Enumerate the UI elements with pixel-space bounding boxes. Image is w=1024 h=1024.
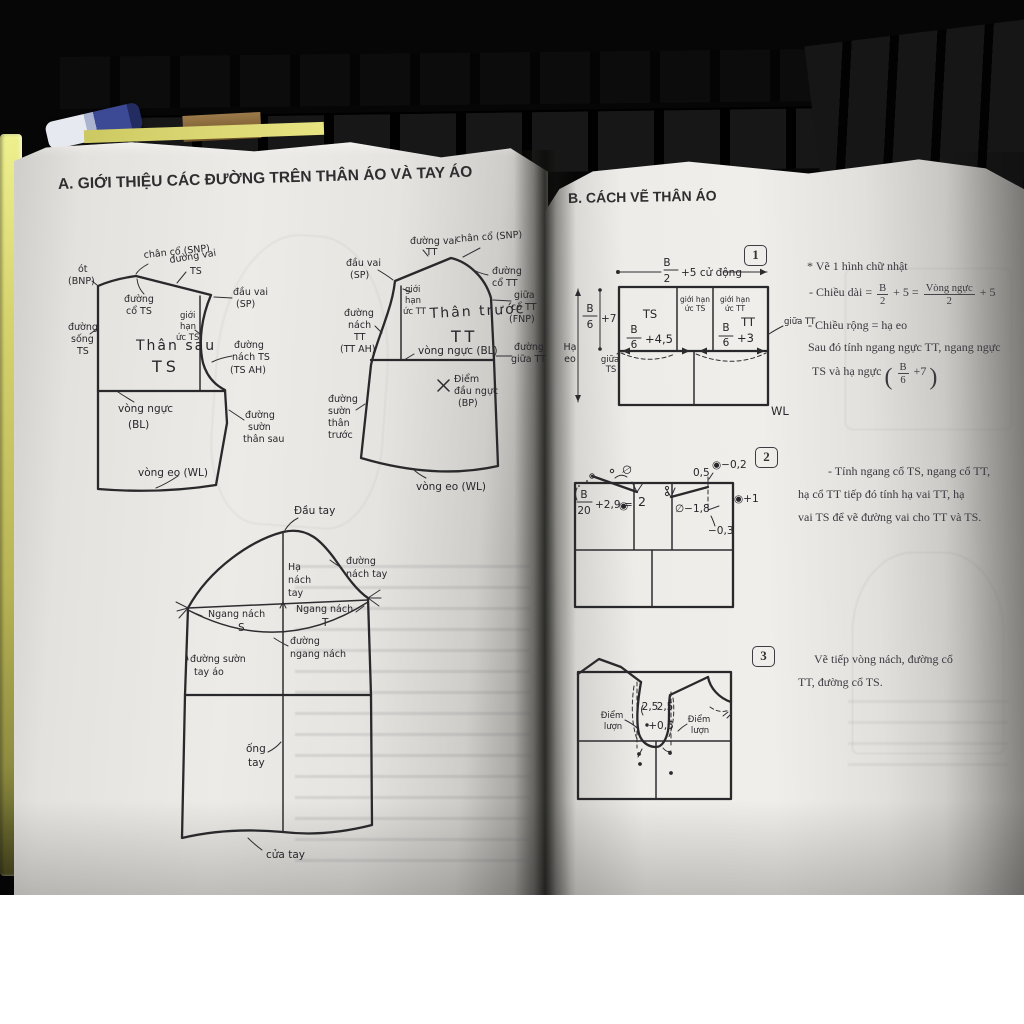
s2-angle-symbol: ∅ <box>620 462 634 478</box>
label-sleeve-tube-2: tay <box>248 757 265 769</box>
label-front-sp-2: (SP) <box>350 270 369 281</box>
s1-top-rest: +5 cử động <box>681 267 742 279</box>
s1-top-frac-num: B <box>663 257 670 269</box>
s1-back-frac-num: B <box>630 324 637 336</box>
label-back-side-1: đường <box>245 410 275 421</box>
step2-note-3: vai TS để vẽ đường vai cho TT và TS. <box>798 506 1024 529</box>
s3-curve-left-2: lượn <box>604 722 622 732</box>
label-front-bp-1: Điểm <box>454 374 479 385</box>
label-back-cb-2: sống <box>71 334 94 345</box>
s1-left-frac-num: B <box>586 303 593 315</box>
label-sleeve-curve-1: đường <box>346 556 376 567</box>
label-front-side-2: sườn <box>328 406 351 417</box>
label-front-neck-2: cổ TT <box>492 278 518 289</box>
label-back-waist: vòng eo (WL) <box>138 467 208 479</box>
label-back-limit-2: hạn <box>180 322 196 332</box>
label-back-shoulder-2: TS <box>189 266 202 277</box>
s3-plus05: +0,5 <box>648 720 674 732</box>
s1-limit-tt-2: ức TT <box>725 304 746 313</box>
s1-center-back-2: TS <box>605 365 617 375</box>
label-back-ot: ót <box>78 264 88 275</box>
s1-front-rest: +3 <box>737 331 754 345</box>
s1-waist-drop-1: Hạ <box>564 342 577 353</box>
s1-limit-ts-1: giới hạn <box>680 295 710 304</box>
label-back-cb-1: đường <box>68 322 98 333</box>
paren-open: ( <box>885 365 893 391</box>
step1-note-2b: + 5 = <box>893 285 919 299</box>
s2-frac-den: 20 <box>577 505 590 517</box>
step1-note-3: - Chiều rộng = hạ eo <box>795 315 1023 335</box>
label-back-armhole-3: (TS AH) <box>230 365 266 376</box>
s1-back-frac-den: 6 <box>631 339 638 351</box>
s1-front-frac-den: 6 <box>723 337 730 349</box>
label-sleeve-front-width-2: T <box>321 617 329 629</box>
s2-target-symbol: ◉ <box>619 500 628 512</box>
s2-front-slope: ∅−1,8 <box>675 503 710 515</box>
step1-note-2c: + 5 <box>980 285 996 299</box>
label-front-snp: chân cổ (SNP) <box>455 229 522 245</box>
label-front-side-4: trước <box>328 430 353 441</box>
sleeve-paths <box>176 518 381 850</box>
white-padding-strip <box>0 895 1024 1024</box>
label-front-shoulder-1: đường vai <box>410 236 457 247</box>
s3-num-right: 2,5 <box>657 701 674 713</box>
s1-ts: TS <box>642 307 657 321</box>
label-sleeve-seam-1: đường sườn <box>190 654 246 665</box>
label-back-sp-1: đầu vai <box>233 287 268 298</box>
label-front-side-1: đường <box>328 394 358 405</box>
back-bodice-diagram: chân cổ (SNP) ót (BNP) đường vai TS đườn… <box>48 238 328 500</box>
label-back-armhole-1: đường <box>234 340 264 351</box>
label-sleeve-depth-1: Hạ <box>288 562 301 573</box>
fraction-b-over-2: B2 <box>877 283 888 307</box>
label-front-limit-2: hạn <box>405 296 421 306</box>
back-bodice-paths <box>90 264 244 491</box>
step1-diagram: B 2 +5 cử động B 6 +7 Hạ eo TS TT giới h… <box>563 250 791 436</box>
fraction-bust-over-2: Vòng ngực2 <box>924 283 975 307</box>
label-sleeve-tube-1: ống <box>246 743 266 755</box>
label-sleeve-cap: Đầu tay <box>294 505 335 517</box>
s1-top-frac-den: 2 <box>664 273 671 285</box>
s1-tt: TT <box>740 315 756 329</box>
sleeve-diagram: Đầu tay Hạ nách tay đường nách tay Ngang… <box>150 490 450 878</box>
label-front-limit-3: ức TT <box>403 307 427 317</box>
s2-frac-num: B <box>580 489 587 501</box>
step2-note-2: hạ cổ TT tiếp đó tính hạ vai TT, hạ <box>798 483 1024 506</box>
label-front-armhole-2: nách <box>348 320 371 331</box>
s1-center-back-1: giữa <box>601 355 619 365</box>
label-front-armhole-1: đường <box>344 308 374 319</box>
step2-diagram: B 20 +2,9 = ◉ ∅ 2 ∅−1,8 0,5 ◉−0,2 ◉+1 −0… <box>563 446 791 636</box>
label-front-limit-1: giới <box>405 284 420 295</box>
front-bodice-diagram: đầu vai (SP) đường vai TT chân cổ (SNP) … <box>318 228 538 510</box>
label-back-bnp: (BNP) <box>68 276 95 287</box>
label-front-bp-2: đầu ngực <box>454 386 498 397</box>
label-sleeve-underarm-2: ngang nách <box>290 649 346 660</box>
label-back-bust-2: (BL) <box>128 419 149 431</box>
step1-note-5: TS và hạ ngực ( B6 +7 ) <box>795 361 1023 388</box>
step3-note-1: Vẽ tiếp vòng nách, đường cổ <box>798 648 1024 671</box>
label-back-bust-1: vòng ngực <box>118 403 173 415</box>
step1-note-2: - Chiều dài = B2 + 5 = Vòng ngực2 + 5 <box>795 282 1023 307</box>
label-front-cf-2: giữa TT <box>511 354 546 365</box>
label-sleeve-curve-2: nách tay <box>346 569 388 580</box>
label-front-side-3: thân <box>328 418 350 429</box>
label-back-abbr: TS <box>151 357 180 376</box>
s1-left-rest: +7 <box>601 313 616 325</box>
step1-note-1: * Vẽ 1 hình chữ nhật <box>795 256 1023 276</box>
label-back-side-3: thân sau <box>243 434 284 445</box>
label-front-neck-1: đường <box>492 266 522 277</box>
label-back-cb-3: TS <box>76 346 89 357</box>
label-back-neck-1: đường <box>124 294 154 305</box>
s1-waist-drop-2: eo <box>564 354 576 365</box>
fraction-b-over-6: B6 <box>898 362 909 386</box>
label-front-sp-1: đầu vai <box>346 258 381 269</box>
s3-curve-left-1: Điểm <box>601 710 623 721</box>
s2-plus1: ◉+1 <box>734 493 759 505</box>
ghost-text-right-page <box>848 700 1008 780</box>
s3-curve-right-2: lượn <box>691 726 709 736</box>
label-sleeve-cuff: cửa tay <box>266 849 305 861</box>
label-sleeve-back-width-1: Ngang nách <box>208 609 265 620</box>
label-back-armhole-2: nách TS <box>232 352 270 363</box>
step1-note-5b: +7 <box>914 364 927 378</box>
step2-paths <box>575 469 733 607</box>
label-sleeve-seam-2: tay áo <box>194 667 224 678</box>
label-front-shoulder-2: TT <box>425 247 438 258</box>
s1-back-rest: +4,5 <box>645 332 673 346</box>
s1-left-frac-den: 6 <box>587 319 594 331</box>
label-sleeve-underarm-1: đường <box>290 636 320 647</box>
paren-close: ) <box>929 365 937 391</box>
label-front-armhole-4: (TT AH) <box>340 344 376 355</box>
label-sleeve-depth-2: nách <box>288 575 311 586</box>
s3-curve-right-1: Điểm <box>688 714 710 725</box>
photo-of-open-book: A. GIỚI THIỆU CÁC ĐƯỜNG TRÊN THÂN ÁO VÀ … <box>0 0 1024 895</box>
label-back-side-2: sườn <box>248 422 271 433</box>
step3-diagram: 2,5 2,5 +0,5 Điểm lượn Điểm lượn <box>563 650 791 832</box>
label-sleeve-back-width-2: S <box>238 622 245 634</box>
book-photo-stage: A. GIỚI THIỆU CÁC ĐƯỜNG TRÊN THÂN ÁO VÀ … <box>0 0 1024 1024</box>
label-back-name: Thân sau <box>135 338 216 354</box>
step1-note-2a: - Chiều dài = <box>809 285 872 299</box>
s2-half: 0,5 <box>693 467 710 479</box>
s2-minus02: ◉−0,2 <box>712 459 747 471</box>
label-sleeve-depth-3: tay <box>288 588 304 599</box>
label-front-cf-1: đường <box>514 342 544 353</box>
s1-wl: WL <box>771 404 789 418</box>
right-section-title: B. CÁCH VẼ THÂN ÁO <box>568 187 717 206</box>
step2-notes: - Tính ngang cổ TS, ngang cổ TT, hạ cổ T… <box>798 460 1024 529</box>
front-bodice-paths <box>356 248 512 478</box>
s1-front-frac-num: B <box>722 322 729 334</box>
step1-note-5a: TS và hạ ngực <box>812 364 882 378</box>
label-front-fnp-1: giữa <box>514 290 535 301</box>
s2-minus03: −0,3 <box>708 525 734 537</box>
label-front-armhole-3: TT <box>353 332 366 343</box>
step1-note-4: Sau đó tính ngang ngực TT, ngang ngực <box>795 337 1023 357</box>
step1-notes: * Vẽ 1 hình chữ nhật - Chiều dài = B2 + … <box>795 256 1023 388</box>
label-front-bp-3: (BP) <box>458 398 478 409</box>
label-front-bust: vòng ngực (BL) <box>418 345 498 357</box>
s2-two: 2 <box>638 494 646 509</box>
label-back-neck-2: cổ TS <box>126 306 152 317</box>
step3-note-2: TT, đường cổ TS. <box>798 671 1024 694</box>
step3-notes: Vẽ tiếp vòng nách, đường cổ TT, đường cổ… <box>798 648 1024 694</box>
label-front-abbr: TT <box>450 327 478 346</box>
s1-limit-ts-2: ức TS <box>685 304 706 313</box>
label-back-sp-2: (SP) <box>236 299 255 310</box>
label-back-limit-1: giới <box>180 310 195 321</box>
step2-note-1: - Tính ngang cổ TS, ngang cổ TT, <box>798 460 1024 483</box>
s1-limit-tt-1: giới hạn <box>720 295 750 304</box>
label-sleeve-front-width-1: Ngang nách <box>296 604 353 615</box>
